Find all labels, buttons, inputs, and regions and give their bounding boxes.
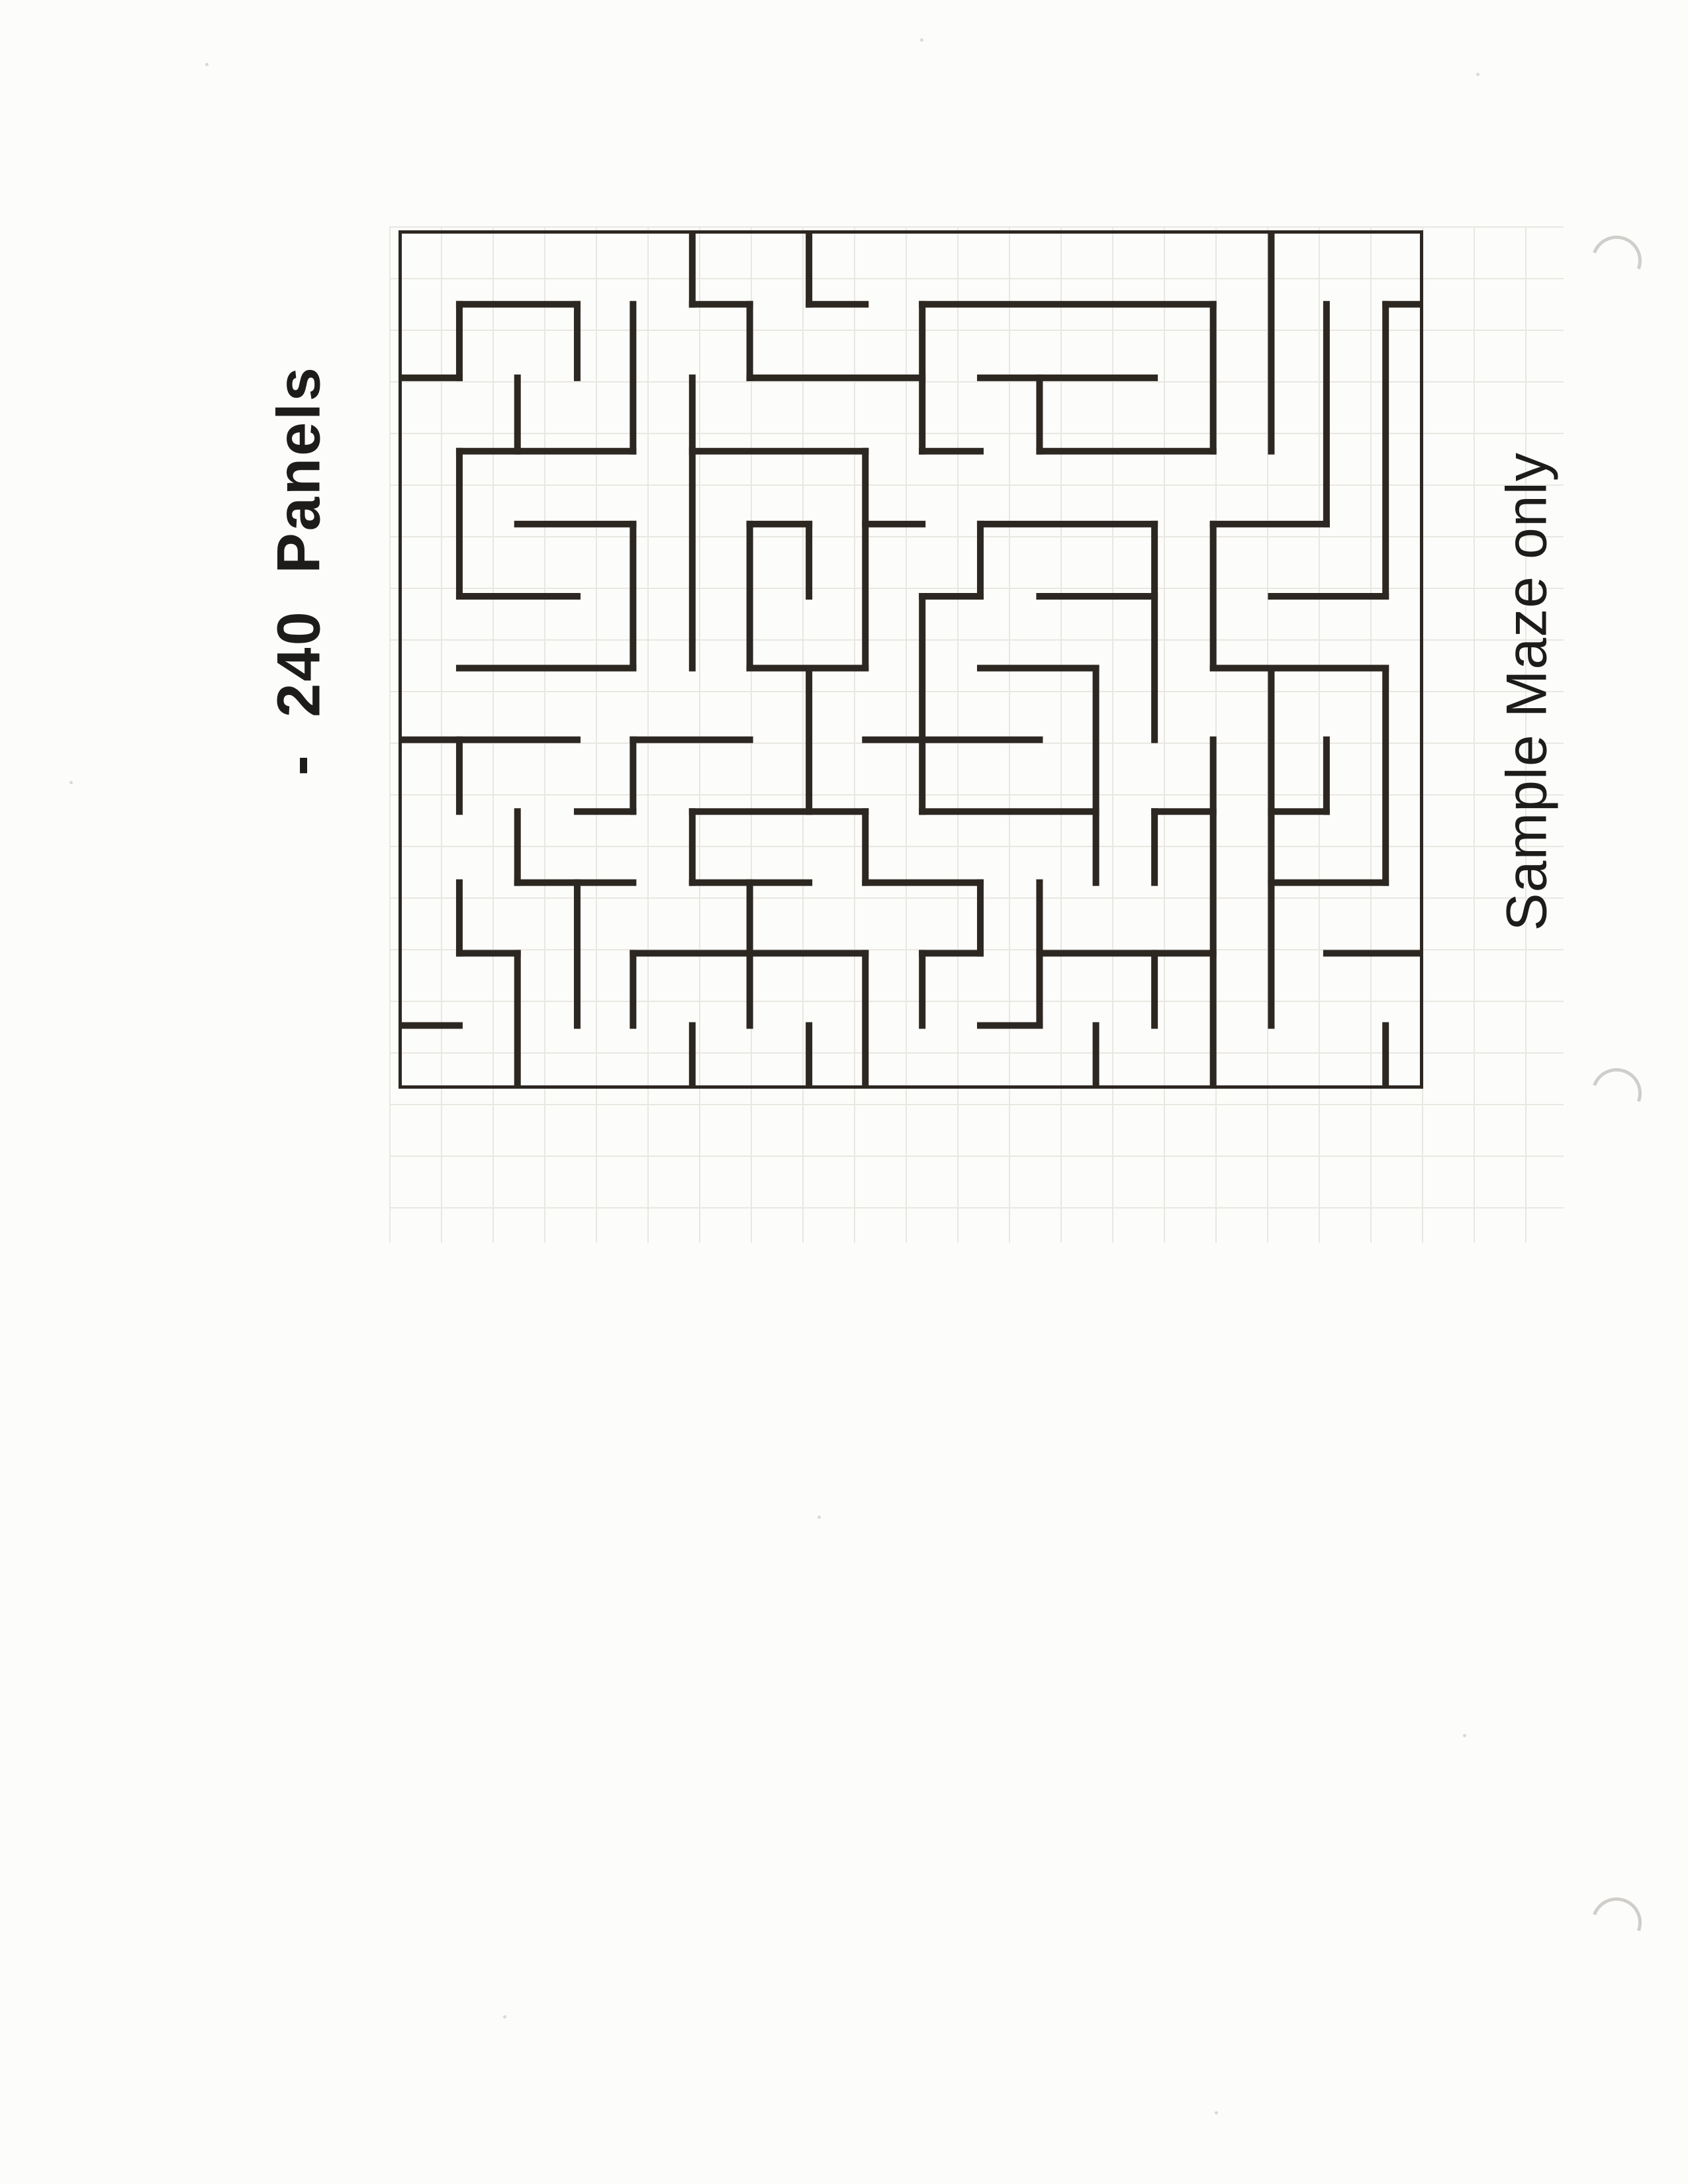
binder-hole-punch — [1583, 228, 1650, 295]
scan-speck — [205, 63, 209, 66]
binder-hole-punch — [1583, 1889, 1650, 1956]
scan-speck — [818, 1516, 821, 1519]
scan-speck — [503, 2015, 506, 2019]
maze-figure — [399, 230, 1423, 1089]
panel-count-label: - 240 Panels — [265, 365, 334, 776]
sample-maze-only-label: Sample Maze only — [1495, 452, 1560, 931]
scan-speck — [70, 781, 73, 784]
binder-hole-punch — [1583, 1060, 1650, 1127]
scanned-page: - 240 Panels Sample Maze only — [0, 0, 1688, 2184]
maze-walls-drawing — [399, 230, 1423, 1089]
scan-speck — [1463, 1734, 1466, 1737]
scan-speck — [1215, 2111, 1218, 2115]
scan-speck — [1476, 73, 1479, 76]
scan-speck — [920, 38, 923, 42]
